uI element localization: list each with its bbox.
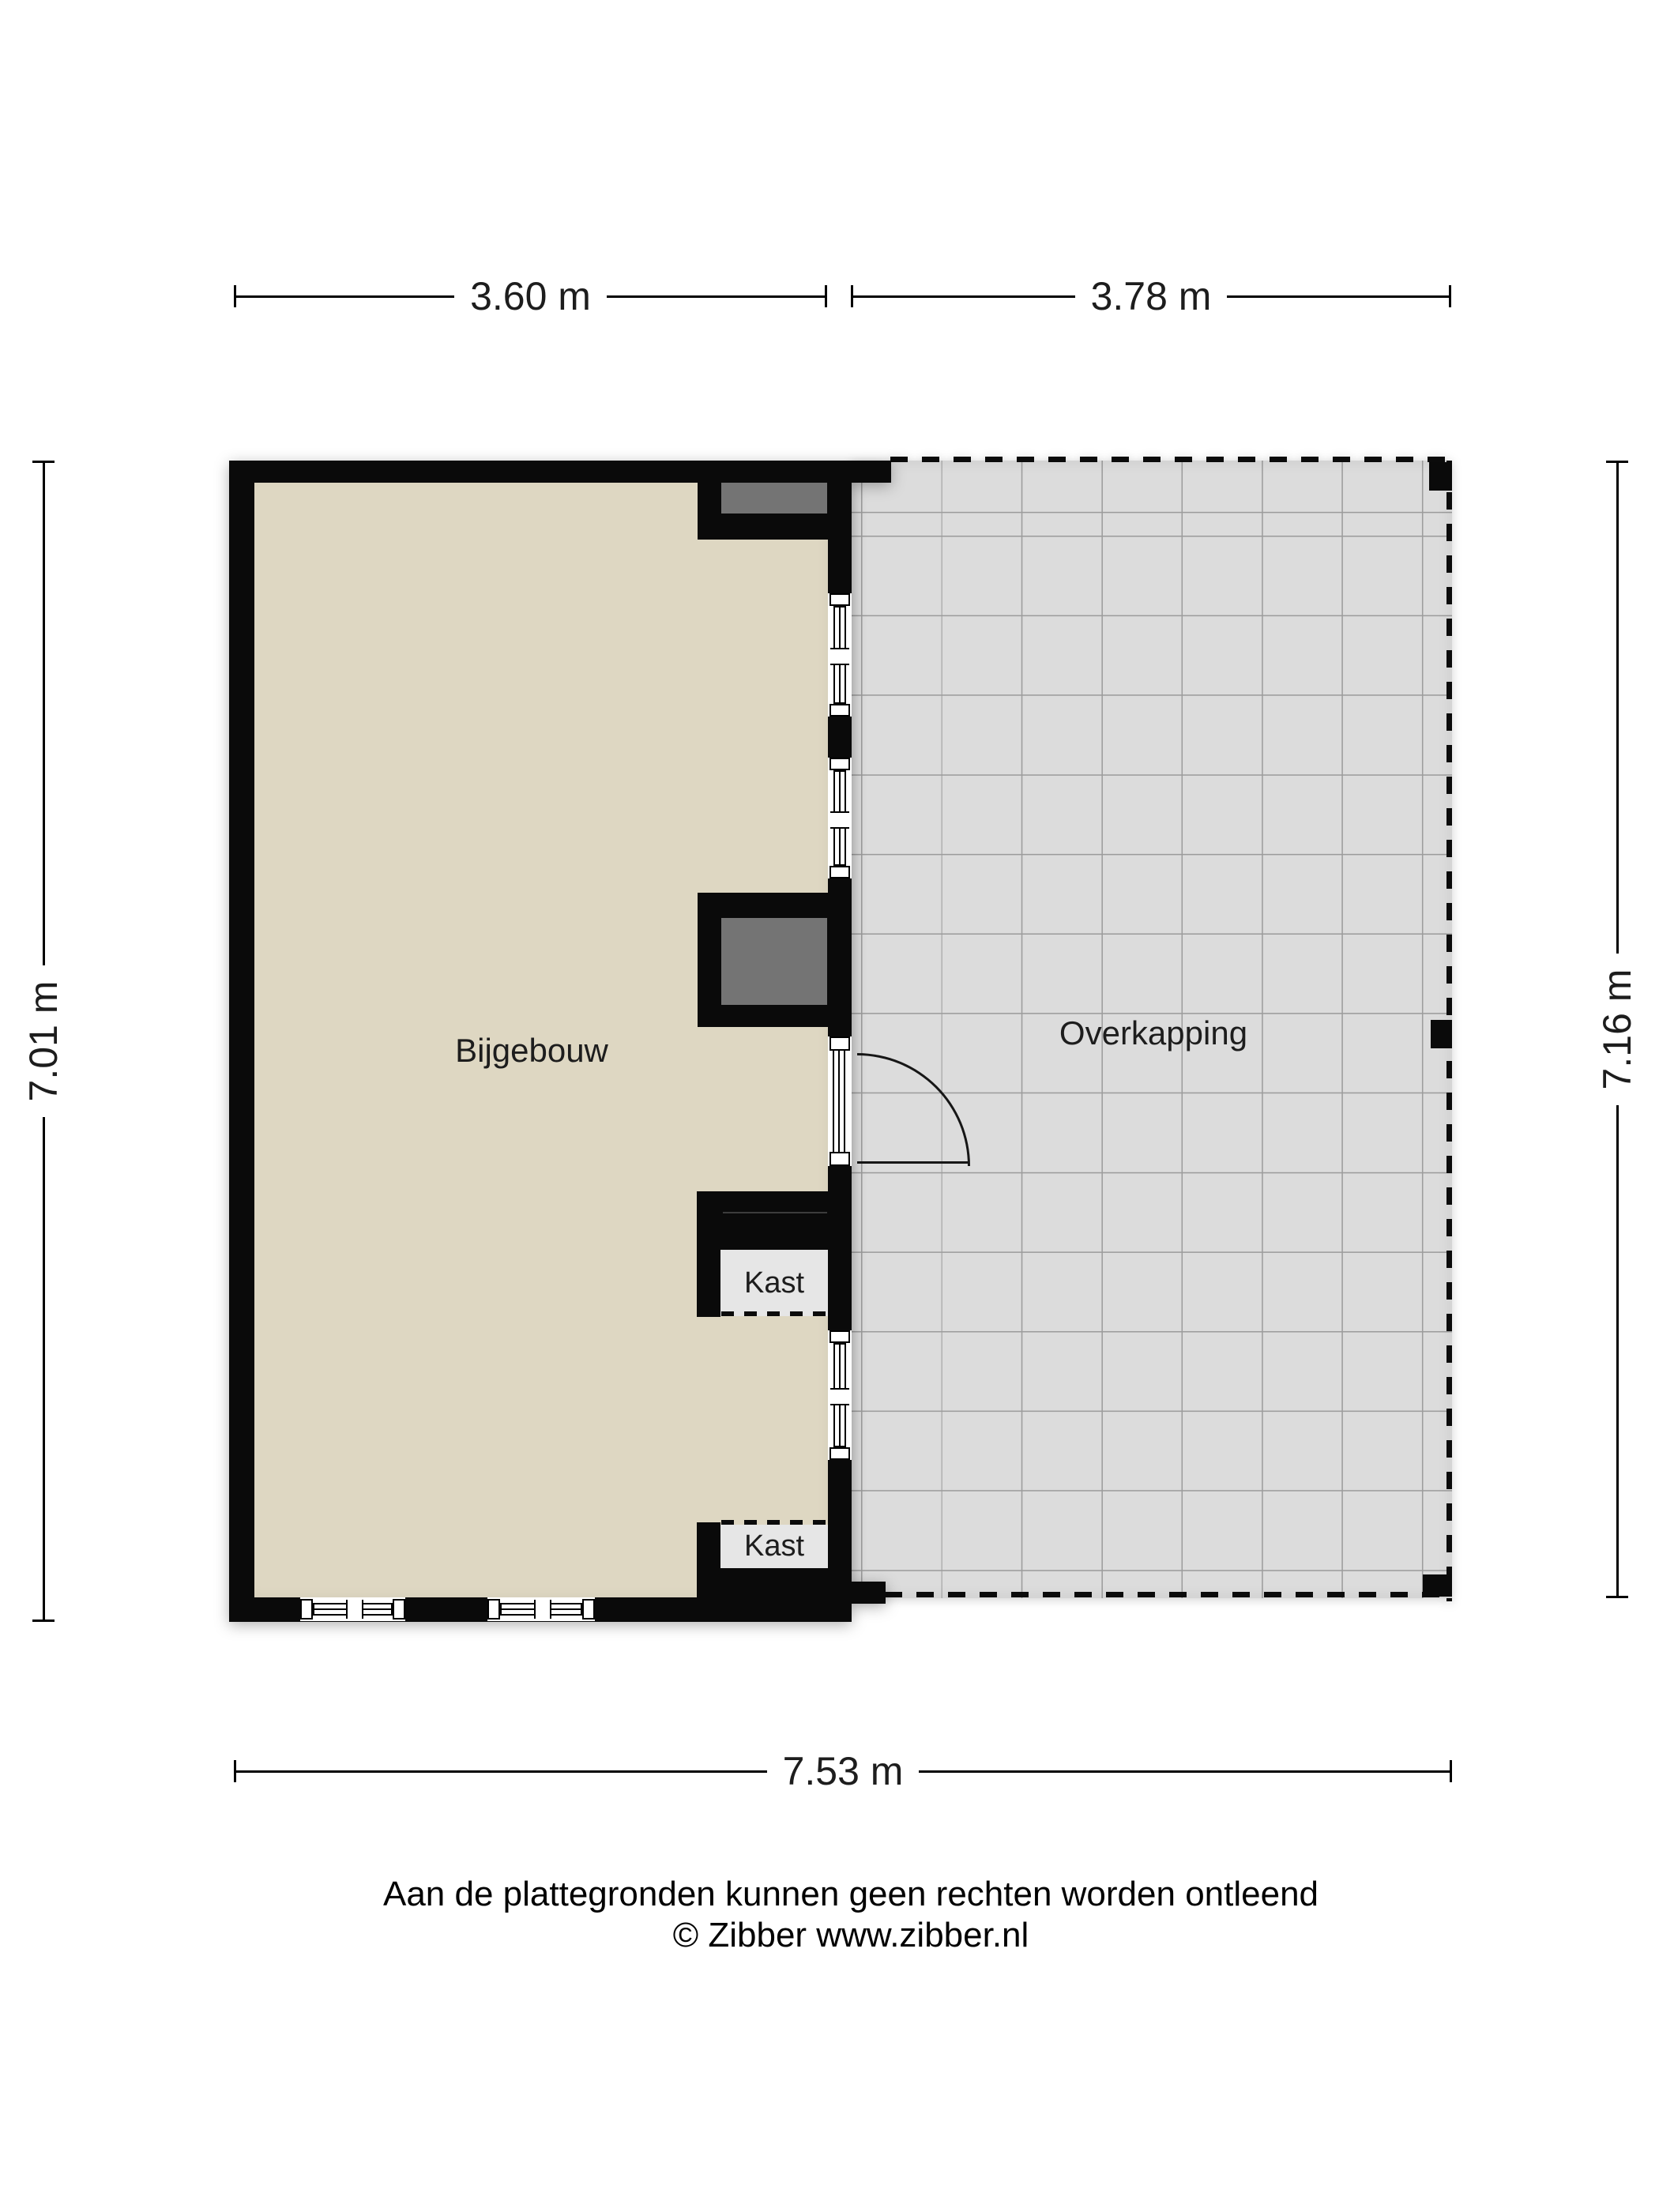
window-jamb xyxy=(829,866,850,878)
door-jamb-bottom xyxy=(829,1152,850,1166)
floorplan-canvas: Kast Kast xyxy=(0,0,1659,2212)
door-frame-lines xyxy=(833,1051,845,1152)
footer-copyright: © Zibber www.zibber.nl xyxy=(219,1915,1483,1956)
closet-upper-dashed-line xyxy=(721,1311,827,1316)
window-jamb xyxy=(829,758,850,770)
dimension-tick xyxy=(32,461,55,463)
dimension-tick xyxy=(234,285,236,307)
closet-lower-left-wall xyxy=(697,1522,720,1568)
dimension-top-right-value: 3.78 m xyxy=(1075,273,1228,320)
window-mullion xyxy=(534,1600,551,1619)
window-jamb xyxy=(582,1599,595,1619)
room-label-bijgebouw: Bijgebouw xyxy=(374,1031,690,1070)
window-right-3 xyxy=(828,1330,852,1460)
closet-upper-shelf-line xyxy=(723,1212,827,1213)
footer-disclaimer: Aan de plattegronden kunnen geen rechten… xyxy=(219,1874,1483,1915)
wall-right-segment-2 xyxy=(828,717,852,758)
wall-right-segment-5 xyxy=(828,1460,852,1622)
closet-lower-label: Kast xyxy=(744,1529,804,1563)
dimension-top-left-value: 3.60 m xyxy=(454,273,607,320)
door-leaf xyxy=(857,1161,969,1164)
window-right-1 xyxy=(828,593,852,717)
closet-lower: Kast xyxy=(720,1525,828,1568)
window-bottom-1 xyxy=(300,1597,405,1621)
closet-upper-left-wall xyxy=(697,1191,720,1317)
window-bottom-2 xyxy=(487,1597,595,1621)
dimension-tick xyxy=(234,1760,236,1782)
dimension-tick xyxy=(1450,1760,1452,1782)
window-mullion xyxy=(346,1600,363,1619)
dimension-tick xyxy=(825,285,827,307)
window-jamb xyxy=(300,1599,313,1619)
dimension-right-value: 7.16 m xyxy=(1593,954,1641,1106)
dimension-top-right: 3.78 m xyxy=(851,273,1451,320)
wall-bottom-stub xyxy=(851,1582,886,1604)
window-jamb xyxy=(829,1447,850,1460)
window-jamb xyxy=(829,1330,850,1343)
dimension-left-value: 7.01 m xyxy=(20,965,67,1118)
dimension-tick xyxy=(1449,285,1451,307)
dimension-tick xyxy=(851,285,853,307)
dimension-tick xyxy=(1606,461,1628,463)
window-jamb xyxy=(393,1599,405,1619)
window-jamb xyxy=(487,1599,500,1619)
niche-top-fixture xyxy=(721,483,827,513)
door-jamb-top xyxy=(829,1036,850,1051)
dimension-tick xyxy=(32,1619,55,1622)
closet-upper-label: Kast xyxy=(744,1266,804,1300)
room-label-overkapping: Overkapping xyxy=(995,1014,1311,1053)
window-mullion xyxy=(830,648,849,665)
window-jamb xyxy=(829,704,850,717)
niche-middle-fixture xyxy=(721,918,827,1005)
dimension-top-left: 3.60 m xyxy=(234,273,827,320)
dimension-bottom-value: 7.53 m xyxy=(767,1747,920,1795)
dimension-right: 7.16 m xyxy=(1593,461,1641,1598)
closet-upper: Kast xyxy=(720,1250,828,1316)
dimension-bottom: 7.53 m xyxy=(234,1747,1452,1795)
window-mullion xyxy=(830,811,849,829)
wall-left xyxy=(229,461,254,1622)
dimension-left: 7.01 m xyxy=(20,461,67,1622)
window-mullion xyxy=(830,1388,849,1405)
window-jamb xyxy=(829,593,850,606)
dimension-tick xyxy=(1606,1596,1628,1598)
window-right-2 xyxy=(828,758,852,878)
